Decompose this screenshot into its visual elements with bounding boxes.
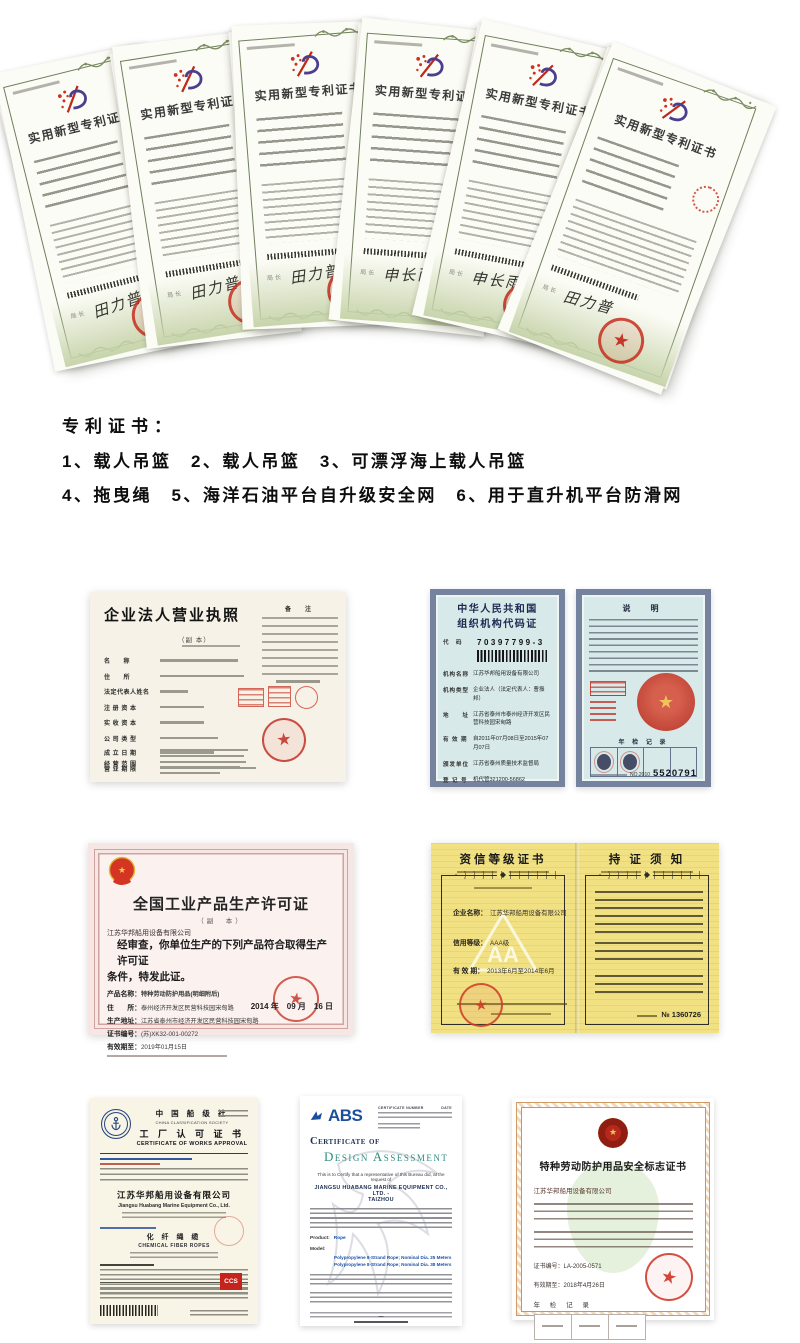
org-code-value: 70397799-3: [477, 638, 545, 647]
office-lines: [378, 1123, 420, 1130]
field-row: 有 效 期：2013年6月至2014年6月: [453, 965, 554, 975]
certificate-title-cn: 工 厂 认 可 证 书: [136, 1127, 248, 1140]
business-license-title: 企业法人营业执照: [104, 604, 240, 625]
ccs-footer: CCS: [100, 1282, 248, 1316]
safety-cert-title: 特种劳动防护用品安全标志证书: [534, 1158, 693, 1173]
field-row: 证书编号：(苏)XK32-001-00272: [107, 1028, 335, 1038]
emblem-star-icon: ★: [609, 1127, 617, 1138]
safety-mark-certificate: ★ 特种劳动防护用品安全标志证书 江苏华邦船用设备有限公司 证书编号：LA-20…: [512, 1098, 714, 1320]
abs-eagle-icon: [310, 1109, 326, 1123]
ccs-anchor-logo: [101, 1109, 131, 1139]
patent-field-lines: [369, 112, 459, 174]
company-name-cn: 江苏华邦船用设备有限公司: [100, 1189, 248, 1201]
field-row: 登 记 号机代管321200-56862: [443, 776, 552, 784]
red-stamp: [268, 686, 291, 707]
red-rect-stamp: [590, 681, 626, 696]
field-row: 地 址江苏省泰州市泰州经济开发区民营科技园宋甸路: [443, 711, 552, 728]
divider: [100, 1153, 248, 1154]
field-row: 信用等级：AAA级: [453, 937, 509, 947]
patent-field-lines: [256, 112, 346, 175]
notes-header: 说 明: [589, 603, 698, 614]
field-row: 公 司 类 型: [104, 734, 254, 743]
round-stamp: [295, 686, 318, 709]
serial-prefix: NO.2010: [630, 772, 650, 778]
company-name: 江苏华邦船用设备有限公司: [107, 928, 335, 938]
address-lines: [122, 1212, 226, 1221]
field-row: 机构类型企业法人（法定代表人：曹振邦）: [443, 686, 552, 703]
ornate-border: ★ 全国工业产品生产许可证 （副 本） 江苏华邦船用设备有限公司 经审查，你单位…: [94, 849, 348, 1029]
signature-script: ~: [310, 1312, 452, 1321]
seal-star-icon: ★: [275, 729, 292, 750]
field-row: 实 收 资 本: [104, 718, 254, 727]
table-cell: [572, 1315, 609, 1339]
statement-line-1: 经审查，你单位生产的下列产品符合取得生产许可证: [117, 938, 335, 970]
orange-ornate-border: ★ 特种劳动防护用品安全标志证书 江苏华邦船用设备有限公司 证书编号：LA-20…: [516, 1102, 710, 1316]
red-stamp: [238, 688, 264, 707]
notes-title: 持 证 须 知: [585, 851, 709, 867]
title-line-2: Design Assessment: [324, 1149, 452, 1165]
remarks-header: 备 注: [262, 604, 338, 613]
abs-design-assessment-certificate: ABS CERTIFICATE NUMBER DATE Certificate …: [300, 1096, 462, 1326]
company-name: 江苏华邦船用设备有限公司: [534, 1185, 693, 1195]
issuer-seal: ★: [640, 1248, 697, 1305]
field-row: 成 立 日 期: [104, 748, 274, 757]
company-line: JIANGSU HUABANG MARINE EQUIPMENT CO., LT…: [310, 1185, 452, 1203]
ccs-works-approval-certificate: 中 国 船 级 社 CHINA CLASSIFICATION SOCIETY 工…: [90, 1098, 258, 1324]
field-row: 营 业 期 限: [104, 764, 274, 773]
terms-paragraph-lines: [310, 1292, 452, 1305]
certify-line: This is to Certify that a representative…: [310, 1172, 452, 1182]
credit-rating-certificate: 资信等级证书 AA 企业名称：江苏华邦船用设备有限公司 信用等级：AAA级 有 …: [431, 843, 719, 1033]
sipo-logo-icon: [286, 49, 326, 80]
annual-inspection-label: 年 检 记 录: [582, 737, 705, 746]
product-detail-lines: [130, 1252, 219, 1258]
intro-paragraph-lines: [100, 1168, 248, 1184]
barcode: [477, 650, 549, 662]
certificate-number-lines: [218, 1110, 248, 1120]
product-row: Product: Rope: [310, 1236, 452, 1241]
license-footer-fields: 成 立 日 期 营 业 期 限: [104, 748, 274, 779]
footnote-line: [107, 1055, 227, 1057]
round-emblem-icon: ★: [598, 1118, 628, 1148]
certificate-body: ★ 特种劳动防护用品安全标志证书 江苏华邦船用设备有限公司 证书编号：LA-20…: [521, 1107, 706, 1312]
model-lines: Polypropylene 8-Strand Rope; Nominal Dia…: [334, 1254, 452, 1269]
org-code-certificate-front: 中华人民共和国 组织机构代码证 代 码 70397799-3 机构名称江苏华邦船…: [430, 589, 565, 787]
emblem-star-icon: ★: [658, 692, 674, 713]
credit-cert-left-page: 资信等级证书 AA 企业名称：江苏华邦船用设备有限公司 信用等级：AAA级 有 …: [431, 843, 575, 1033]
abs-logo-text: ABS: [328, 1106, 362, 1126]
date-label: DATE: [441, 1106, 452, 1110]
serial-number: № 1360726: [661, 1010, 701, 1019]
faint-red-stamp: [214, 1216, 244, 1246]
seal-star-icon: ★: [611, 328, 632, 354]
field-row: 机构名称江苏华邦船用设备有限公司: [443, 670, 552, 678]
annual-inspection-table: [534, 1314, 646, 1340]
barcode: [100, 1305, 158, 1316]
field-row: 住 所: [104, 672, 254, 681]
national-emblem-icon: ★: [107, 856, 137, 888]
notes-paragraphs: [595, 891, 703, 1008]
meta-values: [378, 1112, 452, 1120]
page-info-lines: [190, 1310, 248, 1316]
society-name-en: CHINA CLASSIFICATION SOCIETY: [136, 1120, 248, 1125]
field-row: 注 册 资 本: [104, 703, 254, 712]
field-row: 企业名称：江苏华邦船用设备有限公司: [453, 907, 567, 917]
org-code-title: 中华人民共和国 组织机构代码证: [443, 603, 552, 632]
blue-text-line: [100, 1158, 192, 1160]
credit-cert-right-page: 持 证 须 知 № 1360726: [575, 843, 719, 1033]
production-license-title: 全国工业产品生产许可证: [107, 893, 335, 914]
red-text-lines: [590, 701, 616, 721]
patent-list-line-1: 1、载人吊篮 2、载人吊篮 3、可漂浮海上载人吊篮: [62, 447, 683, 472]
serial-number: 5520791: [653, 768, 697, 779]
code-row: 代 码 70397799-3: [443, 638, 552, 647]
signer-label: 局长: [448, 267, 465, 279]
field-row: 法定代表人姓名: [104, 687, 254, 696]
annual-check-line: [276, 680, 320, 683]
body-paragraph-lines: [534, 1203, 693, 1223]
org-code-certificate-back: 说 明 ★ 年 检 记 录 NO.2010 5520791: [576, 589, 711, 787]
body-paragraph-lines: [310, 1208, 452, 1230]
signer-label: 局长: [541, 282, 559, 296]
production-license-certificate: ★ 全国工业产品生产许可证 （副 本） 江苏华邦船用设备有限公司 经审查，你单位…: [88, 843, 354, 1035]
credit-cert-title: 资信等级证书: [441, 851, 565, 867]
signature-block: ~: [310, 1312, 452, 1323]
table-cell: [535, 1315, 572, 1339]
eval-number-line: [474, 887, 532, 889]
issue-date: 2014 年 09 月 16 日: [251, 1001, 333, 1012]
product-approval-label-line: [100, 1227, 156, 1229]
field-row: 颁发单位江苏省泰州质量技术监督局: [443, 760, 552, 768]
signer-label: 局长: [69, 308, 87, 321]
terms-paragraph-lines: [310, 1274, 452, 1287]
meta-labels: CERTIFICATE NUMBER DATE: [378, 1106, 452, 1110]
table-cell: [609, 1315, 645, 1339]
copy-label: （副 本）: [107, 915, 335, 925]
model-row: Model:: [310, 1247, 452, 1252]
national-emblem-seal: ★: [637, 673, 695, 731]
remarks-lines: [262, 617, 338, 679]
patent-list-text: 专利证书： 1、载人吊篮 2、载人吊篮 3、可漂浮海上载人吊篮 4、拖曳绳 5、…: [62, 412, 683, 515]
serial-row: NO.2010 5520791: [590, 768, 697, 779]
notes-paragraph-lines: [589, 619, 698, 675]
certificate-title-en: CERTIFICATE OF WORKS APPROVAL: [136, 1141, 248, 1147]
field-row: 有效期至：2019年01月15日: [107, 1041, 335, 1051]
registration-number-line: [182, 645, 240, 647]
serial-row: № 1360726: [637, 1010, 701, 1019]
body-paragraph-lines: [534, 1231, 693, 1251]
remarks-block: 备 注: [262, 604, 338, 679]
signer-label: 局长: [166, 288, 183, 299]
signer-label: 局长: [267, 272, 284, 282]
certificate-number-label: CERTIFICATE NUMBER: [378, 1106, 424, 1110]
ccs-red-mark: CCS: [220, 1273, 242, 1290]
title-line-1: Certificate of: [310, 1136, 452, 1147]
seal-star-icon: ★: [658, 1265, 678, 1289]
svg-text:★: ★: [118, 865, 126, 875]
patent-list-line-2: 4、拖曳绳 5、海洋石油平台自升级安全网 6、用于直升机平台防滑网: [62, 481, 683, 506]
business-license-certificate: 企业法人营业执照 备 注 （副 本） 名 称 住 所 法定代表人姓名 注 册 资…: [90, 592, 346, 782]
red-text-line: [100, 1163, 160, 1165]
patent-list-heading: 专利证书：: [62, 412, 683, 437]
field-row: 有 效 期自2011年07月08日至2015年07月07日: [443, 735, 552, 752]
anchor-icon: [108, 1116, 124, 1132]
copy-label: （副 本）: [178, 634, 211, 644]
seal-star-icon: ★: [473, 995, 489, 1015]
company-name-en: Jiangsu Huabang Marine Equipment Co., Lt…: [100, 1203, 248, 1209]
field-row: 名 称: [104, 656, 254, 665]
signature-line: [354, 1321, 408, 1323]
certificate-meta: CERTIFICATE NUMBER DATE: [378, 1106, 452, 1130]
sipo-logo-icon: [411, 51, 451, 82]
sipo-logo-icon: [169, 63, 211, 97]
signer-label: 局长: [360, 267, 377, 277]
approval-standard-label-line: [100, 1264, 154, 1266]
